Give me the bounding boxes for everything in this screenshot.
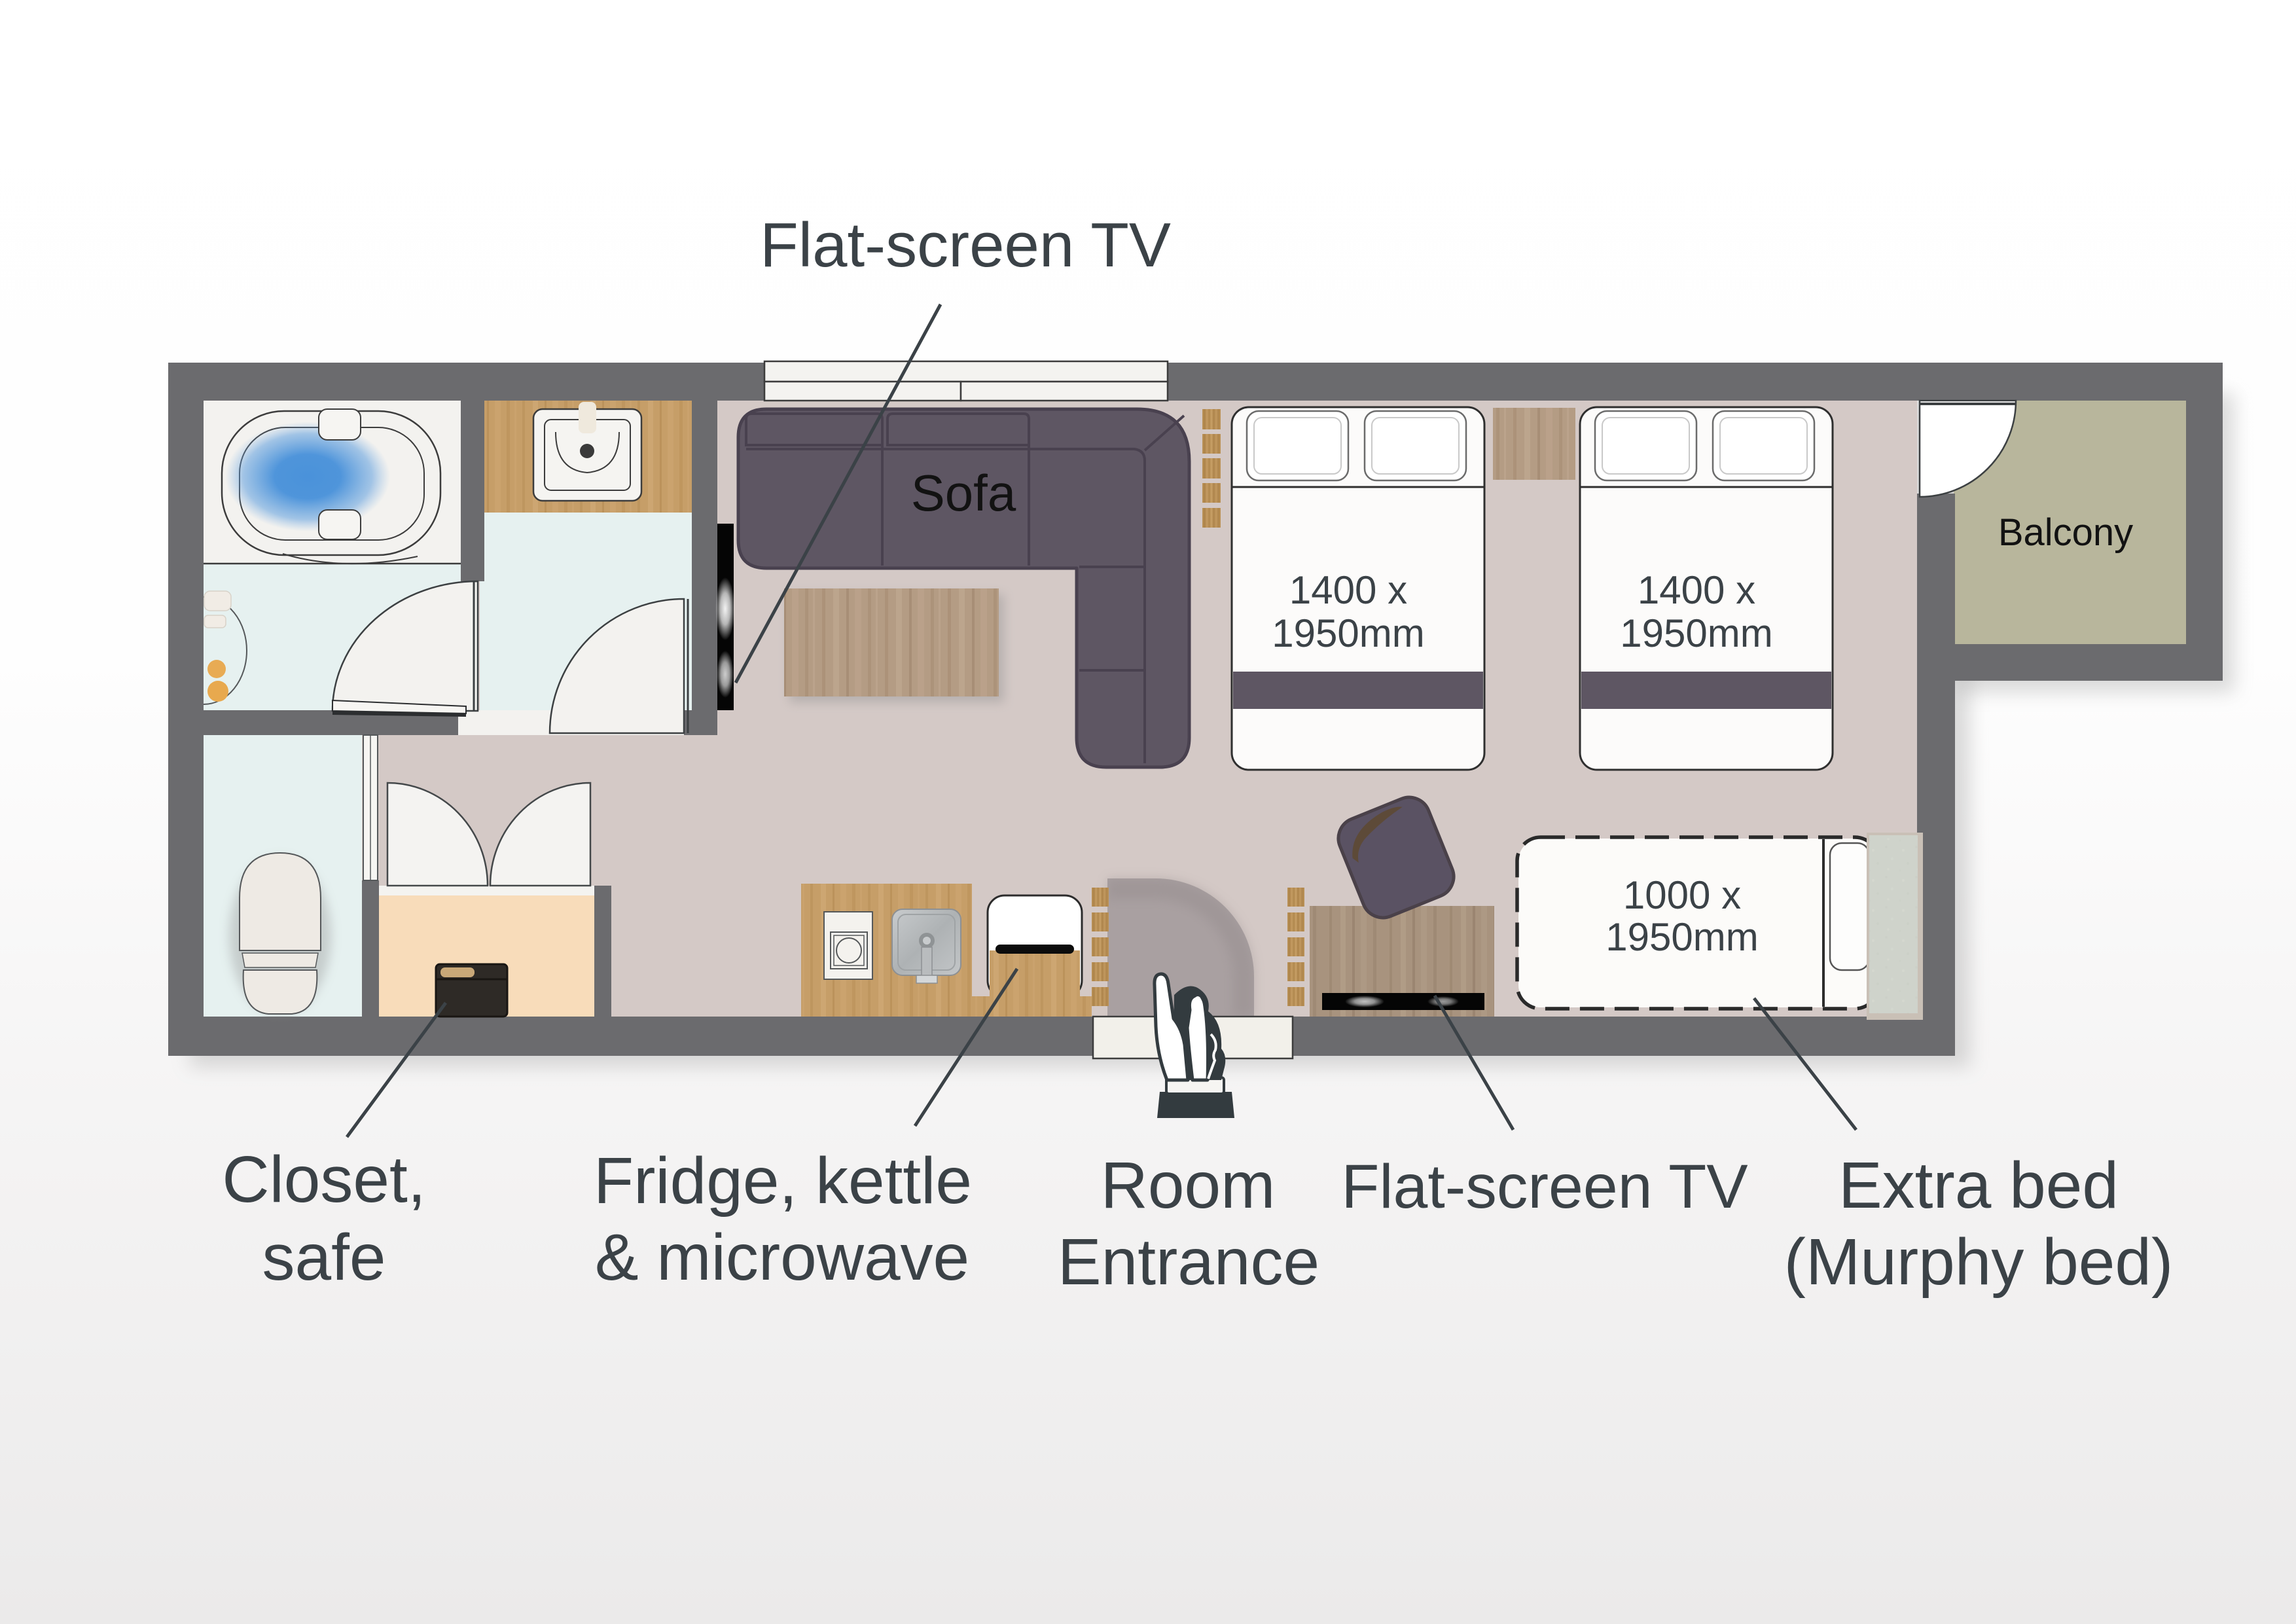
svg-text:safe: safe bbox=[262, 1221, 386, 1294]
svg-text:Fridge, kettle: Fridge, kettle bbox=[594, 1144, 972, 1218]
svg-text:Extra bed: Extra bed bbox=[1839, 1149, 2119, 1222]
svg-text:1000 x: 1000 x bbox=[1623, 873, 1741, 917]
svg-text:1950mm: 1950mm bbox=[1605, 915, 1758, 959]
svg-text:Flat-screen TV: Flat-screen TV bbox=[1341, 1152, 1748, 1221]
svg-text:1400 x: 1400 x bbox=[1289, 568, 1407, 612]
svg-text:1950mm: 1950mm bbox=[1620, 611, 1772, 655]
svg-text:Entrance: Entrance bbox=[1058, 1225, 1319, 1299]
svg-text:Sofa: Sofa bbox=[911, 464, 1016, 522]
svg-text:Closet,: Closet, bbox=[222, 1143, 425, 1216]
svg-text:(Murphy bed): (Murphy bed) bbox=[1784, 1225, 2174, 1299]
svg-text:Flat-screen TV: Flat-screen TV bbox=[760, 210, 1171, 280]
svg-text:1400 x: 1400 x bbox=[1638, 568, 1755, 612]
svg-text:1950mm: 1950mm bbox=[1272, 611, 1424, 655]
svg-text:Room: Room bbox=[1101, 1149, 1276, 1222]
svg-text:Balcony: Balcony bbox=[1998, 511, 2133, 554]
svg-text:& microwave: & microwave bbox=[595, 1221, 969, 1294]
